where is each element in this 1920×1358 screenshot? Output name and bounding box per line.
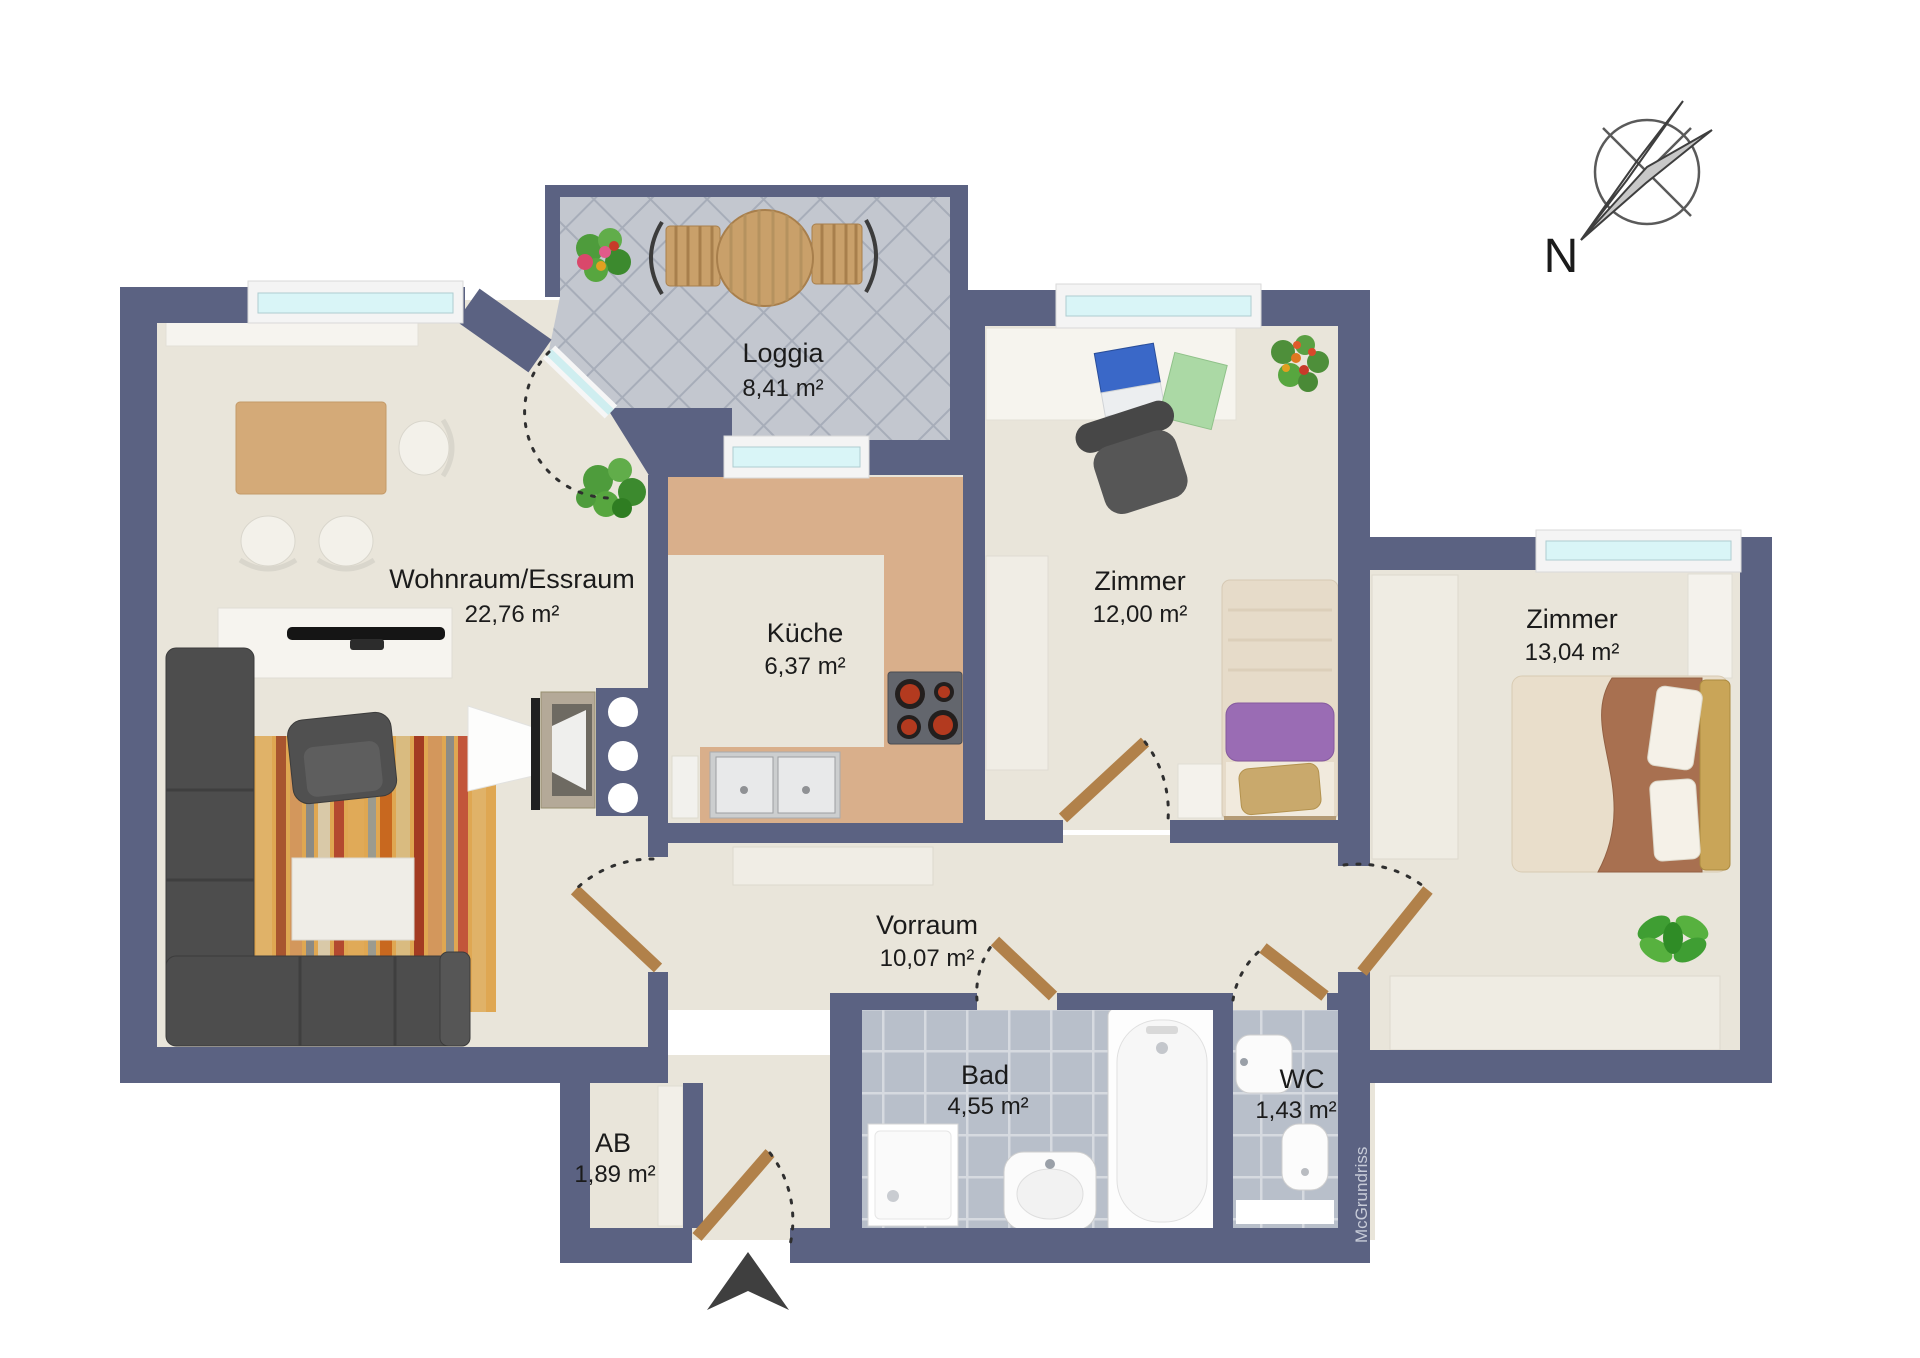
sideboard-zimmer2 [1390, 976, 1720, 1050]
room-area-zimmer1: 12,00 m² [1093, 601, 1188, 628]
bathtub-icon [1108, 1008, 1216, 1234]
wardrobe-zimmer1 [986, 556, 1048, 770]
compass-north-label: N [1544, 230, 1579, 283]
room-label-vorraum: Vorraum [876, 910, 978, 940]
nightstand [1178, 764, 1222, 818]
window-zimmer1 [1056, 284, 1261, 328]
loggia-table [717, 210, 813, 306]
entrance-arrow-icon [707, 1252, 789, 1310]
armchair [286, 711, 398, 805]
room-label-zimmer2: Zimmer [1526, 604, 1617, 634]
wardrobe-zimmer2 [1372, 575, 1458, 859]
room-label-wohnraum: Wohnraum/Essraum [389, 564, 635, 594]
room-label-loggia: Loggia [742, 338, 824, 368]
shower-icon [868, 1124, 958, 1226]
sideboard-vorraum [733, 847, 933, 885]
dining-table [236, 402, 386, 494]
room-area-vorraum: 10,07 m² [880, 945, 975, 972]
window-kueche [724, 436, 869, 478]
room-area-wc: 1,43 m² [1255, 1097, 1336, 1124]
speaker-panel [596, 688, 650, 816]
double-bed [1512, 676, 1730, 872]
wc-shelf [1236, 1200, 1334, 1224]
room-label-zimmer1: Zimmer [1094, 566, 1185, 596]
dishwasher [672, 756, 698, 818]
cabinet [1688, 574, 1732, 678]
watermark: McGrundriss [1352, 1147, 1371, 1243]
coffee-table [292, 858, 414, 940]
washbasin-icon [1004, 1152, 1096, 1230]
room-label-wc: WC [1280, 1064, 1325, 1094]
kitchen-sink-icon [710, 752, 840, 818]
toilet-icon [1282, 1124, 1328, 1190]
sideboard-top [166, 322, 418, 346]
single-bed [1222, 580, 1338, 820]
floor-plan-page: Loggia 8,41 m² Wohnraum/Essraum 22,76 m²… [0, 0, 1920, 1358]
window-zimmer2 [1536, 530, 1741, 572]
room-label-ab: AB [595, 1128, 631, 1158]
closet-ab [658, 1086, 683, 1226]
room-label-bad: Bad [961, 1060, 1009, 1090]
room-area-bad: 4,55 m² [947, 1093, 1028, 1120]
cooktop-icon [888, 672, 962, 744]
compass-icon: N [1544, 101, 1712, 283]
tiled-stove [541, 692, 595, 808]
room-area-zimmer2: 13,04 m² [1525, 639, 1620, 666]
room-area-wohnraum: 22,76 m² [465, 601, 560, 628]
room-area-kueche: 6,37 m² [764, 653, 845, 680]
room-area-ab: 1,89 m² [574, 1161, 655, 1188]
window-wohnraum [248, 281, 463, 323]
floor-plan: Loggia 8,41 m² Wohnraum/Essraum 22,76 m²… [0, 0, 1920, 1358]
room-area-loggia: 8,41 m² [742, 375, 823, 402]
room-label-kueche: Küche [767, 618, 844, 648]
